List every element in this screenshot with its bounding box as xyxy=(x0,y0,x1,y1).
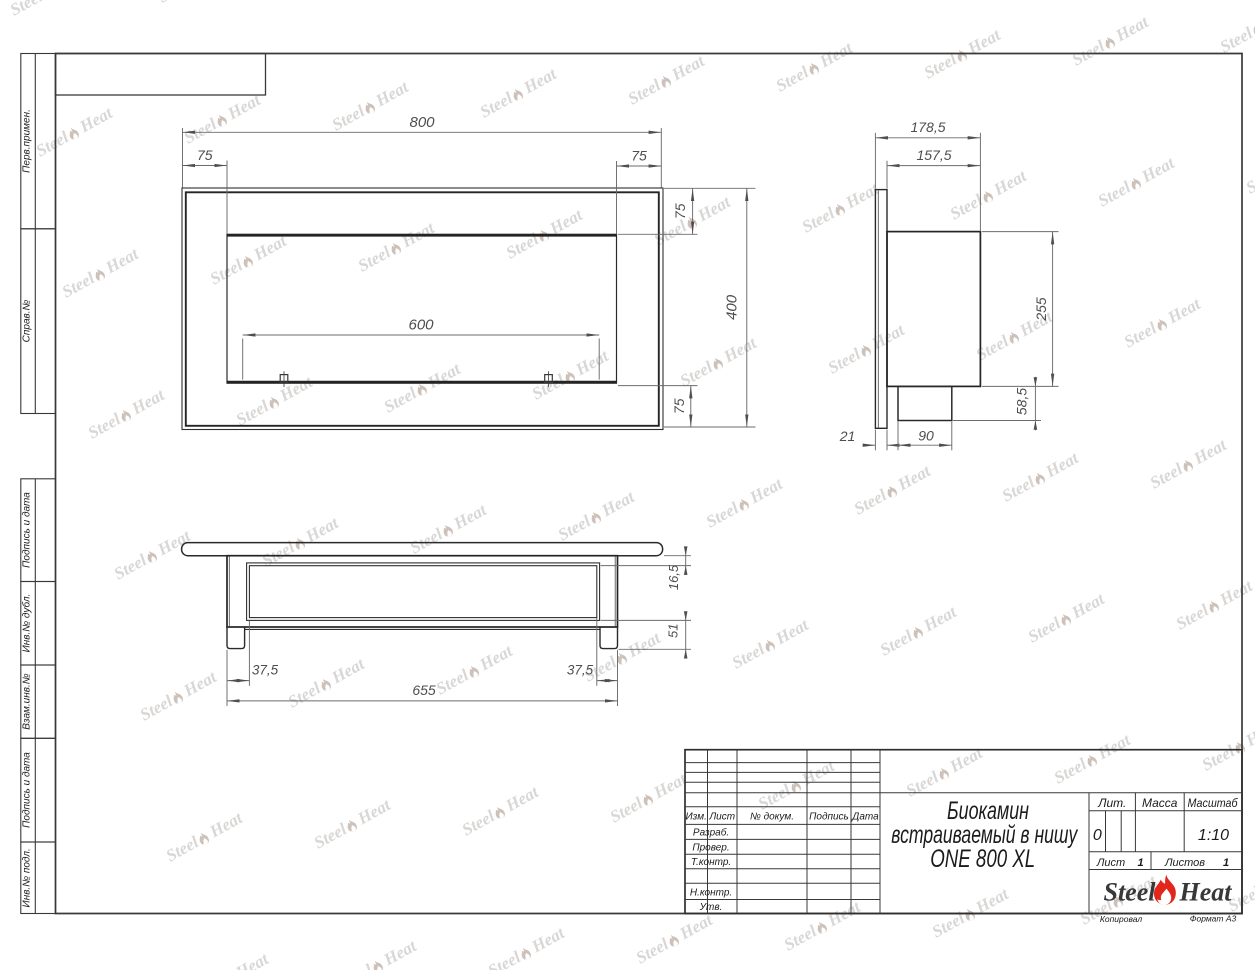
svg-text:Перв.примен.: Перв.примен. xyxy=(21,109,32,173)
svg-text:75: 75 xyxy=(671,398,687,414)
svg-text:Лист: Лист xyxy=(1096,857,1125,869)
svg-text:Формат A3: Формат A3 xyxy=(1190,914,1237,924)
svg-text:Инв.№ подл.: Инв.№ подл. xyxy=(21,848,32,907)
svg-text:Утв.: Утв. xyxy=(699,902,723,913)
svg-text:Провер.: Провер. xyxy=(692,842,729,853)
svg-text:655: 655 xyxy=(412,682,436,698)
svg-text:ONE 800 XL: ONE 800 XL xyxy=(930,845,1035,873)
svg-text:Лит.: Лит. xyxy=(1097,796,1126,810)
svg-text:Копировал: Копировал xyxy=(1100,914,1142,924)
svg-text:37,5: 37,5 xyxy=(252,662,279,677)
svg-text:37,5: 37,5 xyxy=(567,662,594,677)
svg-text:0: 0 xyxy=(1093,827,1102,844)
svg-text:178,5: 178,5 xyxy=(910,119,945,135)
svg-text:21: 21 xyxy=(839,428,856,444)
svg-text:1: 1 xyxy=(1223,857,1229,869)
svg-text:№ докум.: № докум. xyxy=(750,812,794,823)
svg-text:600: 600 xyxy=(408,317,434,334)
svg-text:90: 90 xyxy=(918,428,934,444)
svg-text:400: 400 xyxy=(723,294,740,320)
svg-text:Масштаб: Масштаб xyxy=(1188,796,1239,810)
svg-text:800: 800 xyxy=(409,114,435,131)
svg-text:Т.контр.: Т.контр. xyxy=(691,857,731,868)
svg-text:Подпись: Подпись xyxy=(809,812,849,823)
svg-text:16,5: 16,5 xyxy=(666,564,681,590)
svg-text:51: 51 xyxy=(665,624,680,638)
svg-text:Н.контр.: Н.контр. xyxy=(690,887,732,898)
svg-text:Steel: Steel xyxy=(1104,878,1157,907)
svg-text:Масса: Масса xyxy=(1142,796,1178,810)
svg-text:Подпись и дата: Подпись и дата xyxy=(21,492,32,568)
svg-text:Разраб.: Разраб. xyxy=(693,827,729,839)
svg-text:Изм.: Изм. xyxy=(686,812,707,823)
svg-text:58,5: 58,5 xyxy=(1014,388,1030,415)
svg-text:Лист: Лист xyxy=(708,812,735,823)
svg-text:75: 75 xyxy=(672,203,688,219)
svg-text:Heat: Heat xyxy=(1179,878,1233,907)
svg-text:75: 75 xyxy=(197,147,213,163)
svg-text:75: 75 xyxy=(631,147,647,163)
svg-text:1:10: 1:10 xyxy=(1198,827,1229,844)
svg-text:Справ.№: Справ.№ xyxy=(21,299,32,342)
svg-text:Листов: Листов xyxy=(1164,857,1205,869)
svg-text:157,5: 157,5 xyxy=(916,147,951,163)
svg-text:Инв.№ дубл.: Инв.№ дубл. xyxy=(20,594,32,653)
svg-text:255: 255 xyxy=(1033,297,1049,322)
svg-text:Взам.инв.№: Взам.инв.№ xyxy=(21,673,32,729)
svg-text:1: 1 xyxy=(1137,857,1143,869)
svg-text:Подпись и дата: Подпись и дата xyxy=(21,752,32,828)
svg-text:Дата: Дата xyxy=(851,812,879,823)
